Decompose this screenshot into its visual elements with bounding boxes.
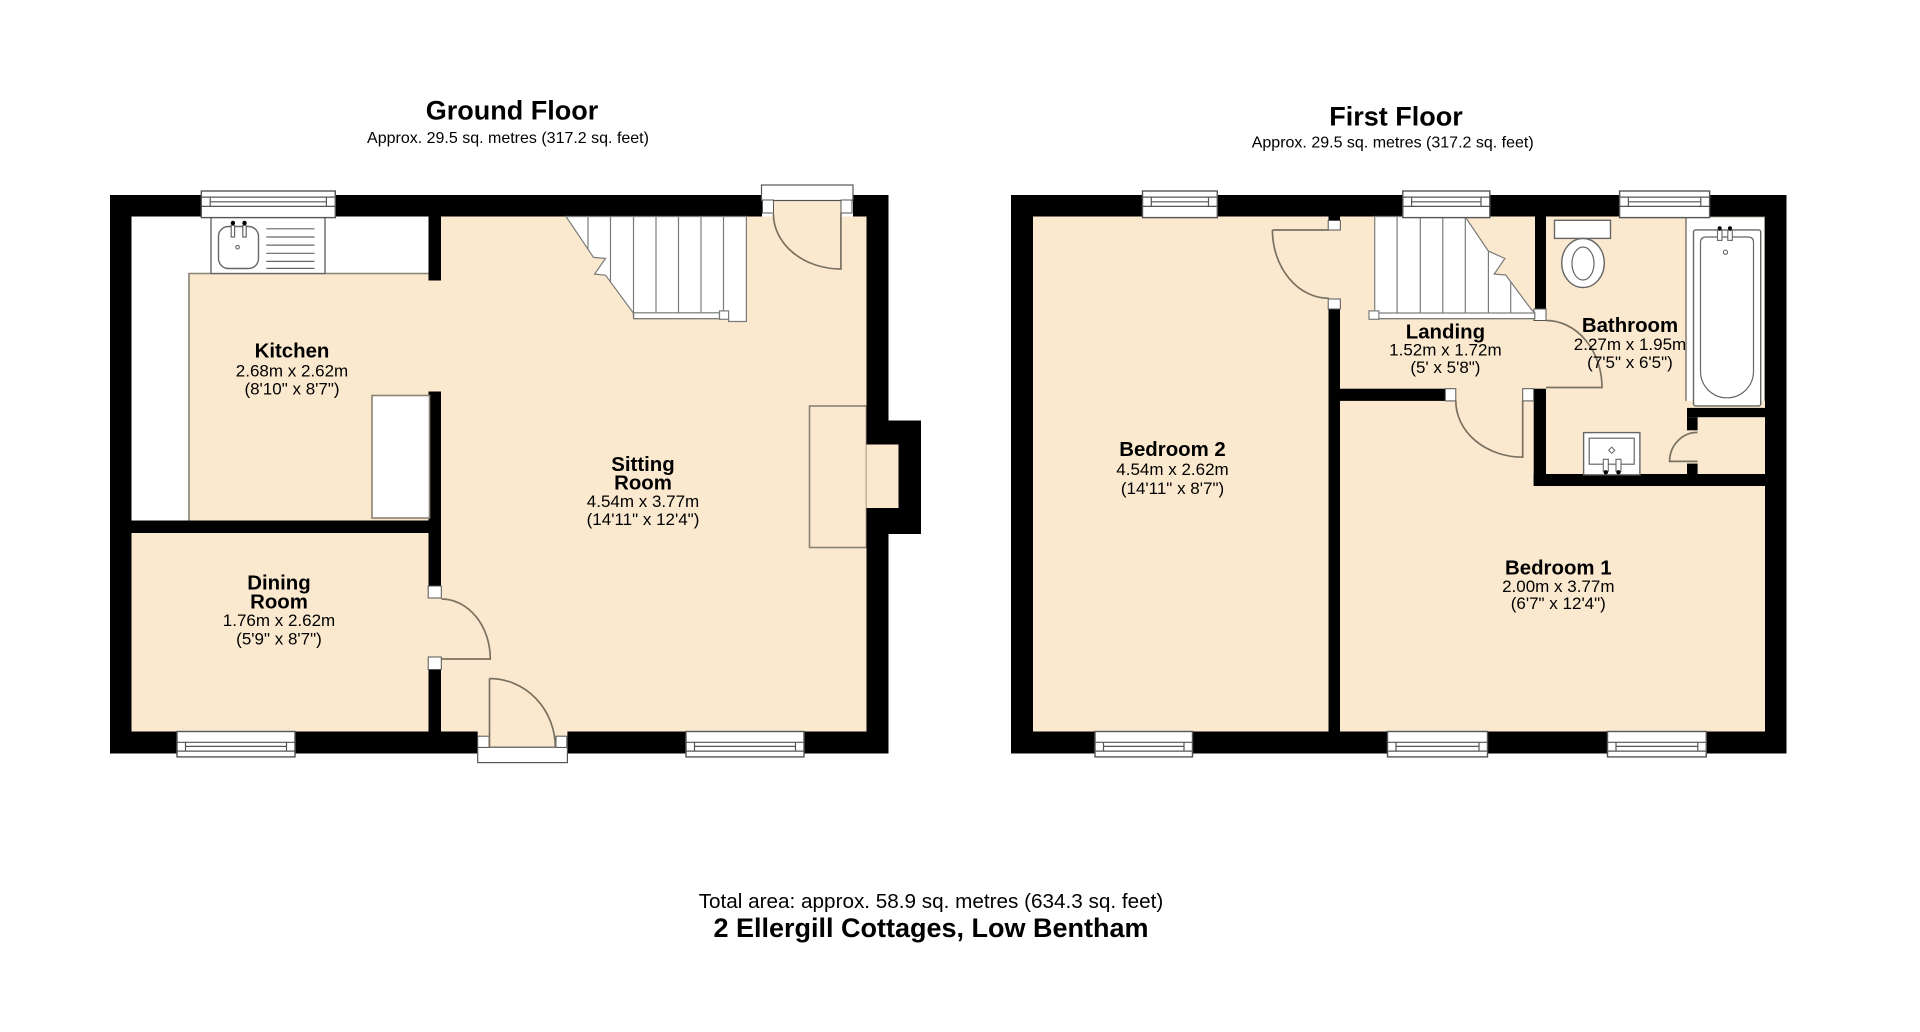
svg-text:(14'11" x 8'7"): (14'11" x 8'7") xyxy=(1121,479,1224,498)
svg-text:2.27m x 1.95m: 2.27m x 1.95m xyxy=(1574,335,1686,354)
svg-text:2.68m x 2.62m: 2.68m x 2.62m xyxy=(236,362,348,381)
svg-text:Approx. 29.5 sq. metres (317.2: Approx. 29.5 sq. metres (317.2 sq. feet) xyxy=(367,130,649,147)
svg-text:(14'11" x 12'4"): (14'11" x 12'4") xyxy=(587,510,700,529)
svg-text:Total area: approx. 58.9 sq. m: Total area: approx. 58.9 sq. metres (634… xyxy=(699,890,1164,913)
svg-text:Ground Floor: Ground Floor xyxy=(426,96,599,126)
svg-text:Bedroom 2: Bedroom 2 xyxy=(1119,439,1226,461)
svg-text:(6'7" x 12'4"): (6'7" x 12'4") xyxy=(1511,594,1606,613)
svg-text:Bathroom: Bathroom xyxy=(1582,315,1678,337)
svg-text:(7'5" x 6'5"): (7'5" x 6'5") xyxy=(1587,353,1673,372)
svg-text:First Floor: First Floor xyxy=(1329,102,1463,132)
svg-text:(5' x 5'8"): (5' x 5'8") xyxy=(1410,358,1480,377)
svg-text:4.54m x 2.62m: 4.54m x 2.62m xyxy=(1116,460,1228,479)
svg-text:(8'10" x 8'7"): (8'10" x 8'7") xyxy=(244,380,339,399)
svg-text:Approx. 29.5 sq. metres (317.2: Approx. 29.5 sq. metres (317.2 sq. feet) xyxy=(1252,135,1534,152)
svg-text:1.76m x 2.62m: 1.76m x 2.62m xyxy=(223,611,335,630)
svg-text:(5'9" x 8'7"): (5'9" x 8'7") xyxy=(236,629,322,648)
svg-text:Room: Room xyxy=(250,592,308,614)
svg-text:4.54m x 3.77m: 4.54m x 3.77m xyxy=(587,492,699,511)
svg-text:Kitchen: Kitchen xyxy=(255,340,330,362)
svg-text:1.52m x 1.72m: 1.52m x 1.72m xyxy=(1389,340,1501,359)
svg-text:2 Ellergill Cottages, Low Bent: 2 Ellergill Cottages, Low Bentham xyxy=(713,913,1148,943)
